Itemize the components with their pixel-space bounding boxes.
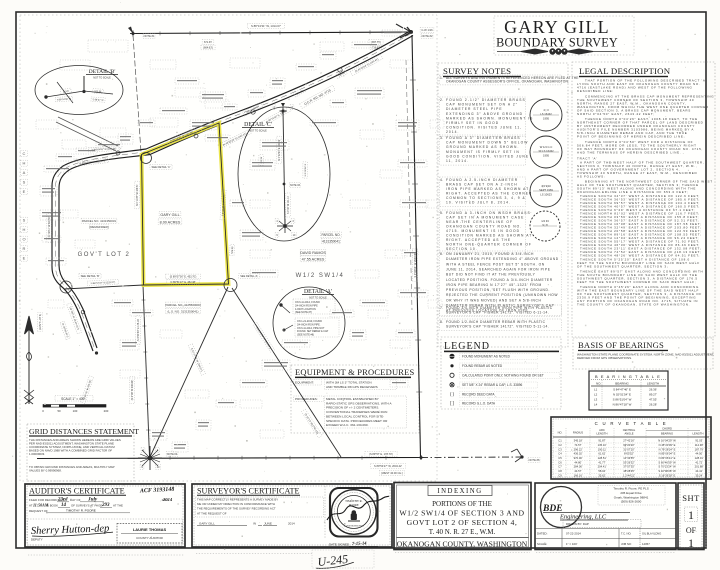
svg-text:IRON PIPE BEARING N 17'27" 45": IRON PIPE BEARING N 17'27" 45"-1323' FRO… [446, 283, 542, 287]
svg-text:4131350041: 4131350041 [322, 240, 340, 244]
svg-text:COUNTY AUDITOR: COUNTY AUDITOR [136, 536, 164, 540]
svg-text:[WEST 40.00 CH.]: [WEST 40.00 CH.] [381, 471, 403, 475]
svg-text:2014: 2014 [162, 497, 173, 502]
svg-text:METAL CONTROL ESTABLISHED BY: METAL CONTROL ESTABLISHED BY [326, 397, 379, 401]
svg-text:A: A [23, 170, 26, 175]
svg-text:201.88': 201.88' [695, 465, 704, 469]
svg-text:RADIUS: RADIUS [573, 431, 583, 435]
svg-text:WITH A STEEL FENCE POST SET 5": WITH A STEEL FENCE POST SET 5" SOUTH. ON [446, 262, 545, 266]
svg-text:REQUEST OF: REQUEST OF [29, 509, 48, 513]
svg-text:BEARING: BEARING [615, 381, 629, 385]
svg-text:(L.S. NO. 3131350041): (L.S. NO. 3131350041) [167, 310, 198, 314]
svg-text:44.80': 44.80' [574, 460, 582, 464]
svg-text:PREVIOUS POSITION, SET FLUSH W: PREVIOUS POSITION, SET FLUSH WITH GROUND… [446, 288, 550, 292]
svg-text:NO.: NO. [596, 381, 602, 385]
svg-text:(SEE NOTE #8): (SEE NOTE #8) [297, 334, 314, 337]
svg-text:NOTE #2: NOTE #2 [422, 34, 433, 38]
svg-text:JUNE: JUNE [264, 522, 272, 526]
svg-text:T.C. NO:: T.C. NO: [621, 532, 632, 536]
svg-text:190.11': 190.11' [598, 447, 607, 451]
svg-text:44.41': 44.41' [695, 469, 703, 473]
svg-text:35.62': 35.62' [598, 473, 606, 477]
svg-text:1 2°44'21": 1 2°44'21" [623, 473, 635, 477]
svg-text:(S 0°09' W 300.00'): (S 0°09' W 300.00') [131, 379, 134, 400]
svg-text:DIAMETER STEEL PIPE: DIAMETER STEEL PIPE [446, 107, 503, 111]
svg-text:N 79°28'24" E: N 79°28'24" E [659, 447, 676, 451]
svg-text:Omak, Washington 98841: Omak, Washington 98841 [614, 495, 649, 499]
svg-text:PORTIONS OF THE: PORTIONS OF THE [432, 500, 492, 508]
svg-text:NOTE #4: NOTE #4 [167, 453, 178, 456]
svg-text:S: S [23, 180, 26, 185]
svg-text:1995: 1995 [543, 153, 549, 157]
svg-text:FOUND 3/4-INCH DIAMETER IRON P: FOUND 3/4-INCH DIAMETER IRON PIPE WITH P… [446, 306, 553, 310]
svg-text:EXCEED W.A.C. 332-130-090.: EXCEED W.A.C. 332-130-090. [326, 423, 369, 427]
svg-text:CALCULATED POINT ONLY, NOTHING: CALCULATED POINT ONLY, NOTHING FOUND OR … [462, 374, 544, 378]
svg-text:CENTRAL: CENTRAL [623, 428, 636, 432]
svg-text:SHT: SHT [682, 493, 700, 503]
svg-text:NORTH ONE-QUARTER CORNER OF: NORTH ONE-QUARTER CORNER OF [446, 243, 532, 247]
svg-text:H: H [23, 161, 26, 166]
svg-text:O: O [22, 237, 25, 242]
svg-text:THIS MAP CORRECTLY REPRESENTS: THIS MAP CORRECTLY REPRESENTS A SURVEY M… [197, 498, 278, 502]
svg-text:RECORD G.L.O. DATA: RECORD G.L.O. DATA [462, 402, 496, 406]
svg-text:L1: L1 [594, 387, 598, 391]
svg-text:48°28'35": 48°28'35" [623, 469, 635, 473]
svg-text:(S 89°57' E, 178.70'): (S 89°57' E, 178.70') [369, 452, 393, 456]
svg-text:SURVEYOR'S CERTIFICATE: SURVEYOR'S CERTIFICATE [197, 487, 299, 496]
svg-text:GRID DISTANCES STATEMENT: GRID DISTANCES STATEMENT [29, 427, 139, 436]
svg-text:9 | 8: 9 | 8 [542, 223, 548, 227]
svg-text:204.41': 204.41' [598, 465, 607, 469]
svg-text:DERIVED FROM GPS OBSERVATIONS.: DERIVED FROM GPS OBSERVATIONS. [577, 356, 632, 360]
svg-text:41.77': 41.77' [598, 460, 606, 464]
svg-text:C3: C3 [558, 447, 562, 451]
svg-text:NORTH 0°04'50" EAST, 2643.42 F: NORTH 0°04'50" EAST, 2643.42 FEET; [577, 112, 655, 116]
svg-text:DATED:: DATED: [537, 532, 548, 536]
svg-text:114.38': 114.38' [695, 443, 704, 447]
svg-text:FOUND REBAR AS NOTED: FOUND REBAR AS NOTED [462, 364, 503, 368]
svg-text:EXTENDING 3" ABOVE GROUND: EXTENDING 3" ABOVE GROUND [446, 112, 523, 116]
svg-text:N 86°47'18" W: N 86°47'18" W [613, 402, 632, 406]
svg-text:( ): ( ) [450, 392, 455, 397]
svg-text:AS FOLLOWS:: AS FOLLOWS: [577, 174, 605, 178]
svg-text:PARCEL NO. 4131350031: PARCEL NO. 4131350031 [82, 219, 116, 223]
svg-text:1: 1 [688, 536, 694, 550]
svg-text:1" = 100': 1" = 100' [566, 542, 578, 546]
svg-text:E: E [23, 256, 26, 261]
svg-text:W1/2 SW1/4 OF SECTION 3 AND: W1/2 SW1/4 OF SECTION 3 AND [399, 509, 524, 518]
svg-text:LEGAL DESCRIPTION: LEGAL DESCRIPTION [579, 66, 671, 76]
svg-text:SURVEYOR'S CAP "FISHER 14172".: SURVEYOR'S CAP "FISHER 14172". VISITED 5… [446, 324, 549, 328]
svg-text:S 84°47'46" E: S 84°47'46" E [613, 387, 631, 391]
svg-text:SEE DETAIL 'C': SEE DETAIL 'C' [152, 165, 171, 169]
svg-text:C8: C8 [558, 469, 562, 473]
svg-text:14057: 14057 [642, 542, 650, 546]
svg-text:2014.: 2014. [446, 130, 460, 134]
svg-text:FOUND A 2.5-INCH DIAMETER: FOUND A 2.5-INCH DIAMETER [446, 178, 518, 182]
svg-text:166.16': 166.16' [574, 473, 583, 477]
svg-text:GOOD CONDITION. VISITED JUNE: GOOD CONDITION. VISITED JUNE [446, 154, 529, 158]
svg-text:S 70°23'24" W: S 70°23'24" W [658, 465, 676, 469]
svg-text:OKANOGAN COUNTY, WASHINGTON: OKANOGAN COUNTY, WASHINGTON [397, 540, 528, 549]
svg-text:IN BOOK: IN BOOK [46, 504, 58, 508]
svg-text:284.00': 284.00' [574, 465, 583, 469]
svg-text:LENGTH: LENGTH [693, 432, 704, 436]
svg-text:31°07'20": 31°07'20" [623, 447, 635, 451]
svg-text:44.57': 44.57' [574, 469, 582, 473]
svg-text:GOV'T LOT 2: GOV'T LOT 2 [78, 252, 131, 258]
svg-text:1.00009033.: 1.00009033. [29, 452, 45, 456]
svg-text:CAP SET IN A MONUMENT CASE: CAP SET IN A MONUMENT CASE [446, 216, 524, 220]
svg-text:C6: C6 [558, 460, 562, 464]
svg-text:91.87': 91.87' [598, 439, 606, 443]
svg-text:8°05'52": 8°05'52" [624, 452, 634, 456]
svg-text:Timothy R. Poore, PE PLS: Timothy R. Poore, PE PLS [613, 487, 648, 491]
svg-text:GROUND MARKED AS SHOWN.: GROUND MARKED AS SHOWN. [446, 145, 519, 149]
svg-text:128.01': 128.01' [695, 456, 704, 460]
svg-text:205 Equal Drive: 205 Equal Drive [620, 491, 642, 495]
svg-text:PRECISION OF +/- 2 CENTIMETERS: PRECISION OF +/- 2 CENTIMETERS. [326, 406, 379, 410]
svg-text:C9: C9 [558, 473, 562, 477]
svg-text:47.55 ACRES: 47.55 ACRES [302, 258, 325, 262]
svg-text:AT THE REQUEST OF: AT THE REQUEST OF [197, 511, 227, 515]
svg-text:07-22-2014: 07-22-2014 [566, 532, 581, 536]
svg-text:RECORD DEED DATA: RECORD DEED DATA [462, 393, 495, 397]
svg-text:NOTE #1: NOTE #1 [144, 34, 155, 38]
svg-text:BRASS CAP SET ON A 2-INCH: BRASS CAP SET ON A 2-INCH [446, 183, 518, 187]
svg-text:OKANOGAN COUNTY ASSESSOR'S OFF: OKANOGAN COUNTY ASSESSOR'S OFFICE, OKANO… [446, 80, 569, 84]
svg-text:GARY GILL: GARY GILL [504, 17, 610, 37]
svg-text:436.02': 436.02' [574, 452, 583, 456]
svg-text:187.79': 187.79' [695, 447, 704, 451]
svg-text:REJECTED THE CURRENT POSITION: REJECTED THE CURRENT POSITION (UNKNOWN H… [446, 293, 558, 297]
svg-text:NOT TO SCALE: NOT TO SCALE [249, 130, 267, 133]
svg-text:37°57'35": 37°57'35" [623, 465, 635, 469]
svg-text:[ ]: [ ] [450, 401, 454, 406]
svg-text:FOUND 1/2-INCH DIAMETER REBAR: FOUND 1/2-INCH DIAMETER REBAR WITH PLAST… [446, 320, 546, 324]
svg-text:IRON PIPE MARKED AS SHOWN AT: IRON PIPE MARKED AS SHOWN AT [446, 187, 529, 191]
svg-text:OF SURVEYS AT PAGE: OF SURVEYS AT PAGE [71, 504, 102, 508]
svg-text:L4: L4 [594, 402, 598, 406]
svg-text:LS 10623: LS 10623 [540, 192, 552, 196]
svg-text:FOUND A 3-INCH ON WSDH BRASS: FOUND A 3-INCH ON WSDH BRASS [446, 211, 531, 215]
svg-text:NOTE #3: NOTE #3 [290, 184, 301, 187]
svg-text:OF: OF [686, 526, 697, 535]
svg-text:1.: 1. [440, 76, 443, 80]
svg-text:GIL BLA VLDNG: GIL BLA VLDNG [642, 532, 661, 536]
svg-text:CAP MONUMENT SET ON A 2": CAP MONUMENT SET ON A 2" [446, 103, 518, 107]
svg-text:THE REQUIREMENTS OF THE SURVEY: THE REQUIREMENTS OF THE SURVEY RECORDING… [197, 507, 276, 511]
svg-text:S 16°39'28" E: S 16°39'28" E [659, 473, 676, 477]
svg-text:BOUNDARY SURVEY: BOUNDARY SURVEY [496, 36, 618, 50]
svg-text:(509) 826-2600: (509) 826-2600 [621, 500, 642, 504]
svg-text:OR WHY IT WAS MOVED) AND SET A: OR WHY IT WAS MOVED) AND SET A 5/8-INCH [446, 298, 541, 302]
svg-text:CAP MONUMENT DOWN 5" BELOW: CAP MONUMENT DOWN 5" BELOW [446, 141, 528, 145]
svg-text:SURVEYOR'S CAP "FISHER 14172".: SURVEYOR'S CAP "FISHER 14172". VISITED 6… [446, 310, 549, 314]
svg-text:S 86°51'04" W: S 86°51'04" W [613, 397, 632, 401]
svg-text:DESCRIBED LINE:: DESCRIBED LINE: [577, 89, 614, 93]
svg-text:23rd: 23rd [57, 498, 68, 503]
svg-text:OKANOGAN COUNTY ROAD NO.: OKANOGAN COUNTY ROAD NO. [446, 225, 522, 229]
svg-text:(S 89°57'00" E, 453.70'): (S 89°57'00" E, 453.70') [170, 276, 197, 279]
svg-text:296.22': 296.22' [574, 447, 583, 451]
svg-text:NOTE #6: NOTE #6 [529, 458, 540, 462]
svg-text:DIAMETER IRON PIPE EXTENDING 4: DIAMETER IRON PIPE EXTENDING 4" ABOVE GR… [446, 257, 559, 261]
svg-text:DAVID RAMOS: DAVID RAMOS [300, 251, 326, 255]
svg-text:14: 14 [61, 503, 67, 508]
svg-text:THE COUNTY OF OKANOGAN, STATE: THE COUNTY OF OKANOGAN, STATE OF WASHING… [577, 303, 690, 307]
svg-text:3.: 3. [440, 136, 443, 140]
svg-text:4 | 3: 4 | 3 [543, 108, 549, 112]
svg-text:(664.63'): (664.63') [203, 47, 213, 50]
svg-text:DEPUTY: DEPUTY [31, 538, 43, 542]
svg-text:53°26'32": 53°26'32" [623, 460, 635, 464]
svg-text:C7: C7 [558, 465, 562, 469]
svg-text:W1/2 SW1/4: W1/2 SW1/4 [296, 273, 345, 279]
svg-text:FOUND MONUMENT AS NOTED: FOUND MONUMENT AS NOTED [462, 355, 511, 359]
svg-text:SEE DETAIL 'B': SEE DETAIL 'B' [81, 274, 100, 278]
svg-text:AT THE: AT THE [113, 504, 123, 508]
svg-text:T. 40 N. R. 27 E., W.M.: T. 40 N. R. 27 E., W.M. [429, 528, 496, 536]
svg-text:8.00 ACRES: 8.00 ACRES [160, 221, 181, 225]
svg-text:135.10': 135.10' [598, 443, 607, 447]
svg-text:TIMOTHY R. POORE: TIMOTHY R. POORE [66, 509, 96, 513]
svg-text:N 0°06'04" E: N 0°06'04" E [305, 163, 307, 176]
svg-text:LAURIE THOMAS: LAURIE THOMAS [133, 527, 167, 532]
svg-text:91.03': 91.03' [695, 439, 703, 443]
svg-text:IN: IN [253, 522, 256, 526]
svg-text:ON JANUARY 21, 2010, FOUND A 3: ON JANUARY 21, 2010, FOUND A 3/4-INCH [446, 252, 534, 256]
svg-text:N 45°23'09" E: N 45°23'09" E [659, 443, 676, 447]
svg-text:BEARING: BEARING [661, 432, 673, 436]
svg-text:H: H [23, 227, 26, 232]
svg-text:LENGTH: LENGTH [597, 432, 608, 436]
svg-text:C1: C1 [558, 439, 562, 443]
svg-text:FOUND 2-1/2" DIAMETER BRASS: FOUND 2-1/2" DIAMETER BRASS [446, 98, 526, 102]
svg-text:B E A R I N G T A B L E: B E A R I N G T A B L E [595, 374, 661, 379]
svg-text:33 LS 16432: 33 LS 16432 [538, 149, 554, 153]
svg-text:1: 1 [688, 508, 694, 522]
svg-text:AUDITOR'S CERTIFICATE: AUDITOR'S CERTIFICATE [29, 487, 125, 496]
svg-text:RIGHT. ACCEPTED AS THE CORNER: RIGHT. ACCEPTED AS THE CORNER [446, 192, 532, 196]
svg-text:7-15-14: 7-15-14 [352, 540, 367, 546]
svg-text:61.62': 61.62' [598, 452, 606, 456]
svg-text:LAND SURVEYOR: LAND SURVEYOR [344, 525, 364, 528]
svg-text:PROCEDURES:: PROCEDURES: [295, 397, 318, 401]
svg-text:2014: 2014 [288, 522, 295, 526]
svg-text:200: 200 [104, 409, 109, 413]
svg-text:W 1/4 C-C: W 1/4 C-C [540, 145, 553, 149]
svg-text:NOT TO SCALE: NOT TO SCALE [93, 77, 111, 80]
svg-text:11, 2014.: 11, 2014. [446, 159, 469, 163]
svg-text:293: 293 [101, 503, 110, 508]
svg-text:LENGTH: LENGTH [647, 381, 659, 385]
svg-text:74.57': 74.57' [574, 443, 582, 447]
svg-text:POINT OF BEGINNING OF HEREIN D: POINT OF BEGINNING OF HEREIN DESCRIBED L… [577, 135, 685, 139]
svg-text:CONDITION MARKED AS SHOWN AT: CONDITION MARKED AS SHOWN AT [446, 234, 532, 238]
svg-text:C2: C2 [558, 443, 562, 447]
svg-text:CHORD: CHORD [662, 427, 672, 431]
svg-text:L3: L3 [594, 397, 598, 401]
svg-text:AND TRIMBLE R8 GPS RECEIVERS: AND TRIMBLE R8 GPS RECEIVERS [326, 385, 378, 389]
svg-text:LEGEND: LEGEND [444, 341, 490, 352]
svg-text:FOUND A 3" DIAMETER BRASS: FOUND A 3" DIAMETER BRASS [446, 136, 521, 140]
svg-text:S 60°46'59" W: S 60°46'59" W [658, 460, 676, 464]
svg-text:2.: 2. [440, 98, 443, 102]
svg-text:44.50': 44.50' [695, 452, 703, 456]
svg-text:14°33'55": 14°33'55" [623, 456, 635, 460]
svg-text:MARKED AS SHOWN. MONUMENT IS: MARKED AS SHOWN. MONUMENT IS [446, 116, 533, 120]
svg-text:8.: 8. [440, 320, 443, 324]
svg-text:4715. MONUMENT IS IN GOOD: 4715. MONUMENT IS IN GOOD [446, 229, 520, 233]
svg-text:L2: L2 [594, 392, 598, 396]
svg-text:5.: 5. [440, 211, 443, 215]
svg-text:4|3 9|10: 4|3 9|10 [541, 184, 551, 188]
svg-text:RIGHT. ACCEPTED AS THE: RIGHT. ACCEPTED AS THE [446, 238, 511, 242]
svg-text:50: 50 [57, 409, 61, 413]
svg-text:EQUIPMENT & PROCEDURES: EQUIPMENT & PROCEDURES [295, 367, 415, 377]
svg-text:S 40°08'28" W: S 40°08'28" W [658, 469, 676, 473]
svg-text:C5: C5 [558, 456, 562, 460]
svg-text:SET 5/8" X 24" REBAR & CAP, L.: SET 5/8" X 24" REBAR & CAP, L.S. 33896 [462, 383, 522, 387]
svg-text:GARY GILL: GARY GILL [160, 213, 179, 217]
svg-text:EQUIPMENT:: EQUIPMENT: [295, 381, 314, 385]
svg-text:C-W 1/16: C-W 1/16 [421, 28, 433, 32]
svg-text:ANGLE: ANGLE [624, 432, 633, 436]
svg-text:COMMON TO SECTIONS 3, 4, 9 &: COMMON TO SECTIONS 3, 4, 9 & [446, 196, 526, 200]
svg-text:BASIS OF BEARINGS: BASIS OF BEARINGS [578, 340, 664, 350]
svg-text:26.28': 26.28' [649, 402, 657, 406]
svg-text:58.04': 58.04' [598, 469, 606, 473]
svg-text:N 89°51'47" E, 452.38': N 89°51'47" E, 452.38' [170, 281, 196, 284]
svg-text:FIRMLY SET IN GOOD: FIRMLY SET IN GOOD [446, 121, 499, 125]
svg-text:NO.: NO. [558, 431, 563, 435]
svg-text:S 89°54'27" W, 2643.42': S 89°54'27" W, 2643.42' [374, 464, 402, 468]
svg-text:(REMAINDER): (REMAINDER) [89, 225, 108, 229]
svg-text:N 02°51'54" E: N 02°51'54" E [613, 392, 631, 396]
svg-text:DAY OF: DAY OF [70, 498, 81, 502]
svg-text:41.72': 41.72' [695, 460, 703, 464]
svg-text:(SEE NOTE #7): (SEE NOTE #7) [295, 311, 312, 314]
svg-text:26.36': 26.36' [649, 387, 657, 391]
svg-text:NEAR THE CENTERLINE OF: NEAR THE CENTERLINE OF [446, 220, 513, 224]
svg-text:GARY GILL: GARY GILL [199, 522, 215, 526]
svg-text:S 0°06' W 101.11': S 0°06' W 101.11' [288, 195, 290, 214]
svg-text:INDEXING: INDEXING [437, 488, 482, 495]
svg-text:89.27': 89.27' [649, 392, 657, 396]
svg-text:ME OR UNDER MY DIRECTION IN CO: ME OR UNDER MY DIRECTION IN CONFORMANCE … [197, 502, 275, 506]
svg-text:E: E [23, 189, 26, 194]
svg-text:(657.75'): (657.75') [371, 41, 381, 44]
svg-text:970.00': 970.00' [574, 456, 583, 460]
svg-text:LOCATED POSITION. FOUND A 3/4: LOCATED POSITION. FOUND A 3/4-INCH DIAME… [446, 278, 553, 282]
svg-text:128.51': 128.51' [598, 456, 607, 460]
svg-text:BETWEEN LOCAL CONTROL FOR SITE: BETWEEN LOCAL CONTROL FOR SITE- [326, 414, 384, 418]
svg-text:C4: C4 [558, 452, 562, 456]
svg-text:DRAWN BY: DAP: DRAWN BY: DAP [566, 522, 589, 526]
svg-text:10. VISITED JULY 8, 2014.: 10. VISITED JULY 8, 2014. [446, 201, 511, 205]
svg-text:OF THE SOUTHWEST QUARTER, SECT: OF THE SOUTHWEST QUARTER, SECTION 3; [577, 264, 668, 268]
svg-text:100: 100 [73, 409, 78, 413]
svg-text:35.24': 35.24' [695, 473, 703, 477]
svg-text:345.18': 345.18' [574, 439, 583, 443]
svg-text:N 84°06'41" E: N 84°06'41" E [659, 456, 676, 460]
svg-text:DATE SIGNED: DATE SIGNED [329, 543, 350, 547]
svg-text:N 0°11'25" W 164.51': N 0°11'25" W 164.51' [137, 184, 139, 206]
svg-text:JUNE 11, 2014, SEARCHED AGAIN: JUNE 11, 2014, SEARCHED AGAIN FOR IRON P… [446, 267, 551, 271]
svg-text:S 88°13'31" W, 1314.67': S 88°13'31" W, 1314.67' [251, 24, 282, 28]
svg-text:S: S [23, 218, 26, 223]
svg-text:SEE DETAIL 'A': SEE DETAIL 'A' [240, 275, 258, 278]
svg-text:27°42'16": 27°42'16" [623, 439, 635, 443]
svg-text:R: R [23, 246, 26, 251]
svg-text:1/4 33: 1/4 33 [541, 219, 549, 223]
svg-text:C U R V E T A B L E: C U R V E T A B L E [595, 421, 668, 426]
svg-text:MONUMENT IS FIRMLY SET IN: MONUMENT IS FIRMLY SET IN [446, 150, 520, 154]
svg-text:SURVEY NOTES: SURVEY NOTES [443, 66, 511, 76]
svg-text:SEPT 1969: SEPT 1969 [539, 188, 553, 192]
svg-text:1995: 1995 [543, 116, 549, 120]
svg-text:N 85°06'04" E: N 85°06'04" E [659, 452, 676, 456]
svg-text:N 16°04'29" W: N 16°04'29" W [658, 439, 676, 443]
svg-text:GOVT LOT 2 OF SECTION 4,: GOVT LOT 2 OF SECTION 4, [407, 518, 518, 527]
svg-text:(GOV'T LOT 3): (GOV'T LOT 3) [39, 314, 42, 330]
svg-text:47.55': 47.55' [649, 397, 657, 401]
svg-text:6.: 6. [440, 252, 443, 256]
svg-text:JOB NO:: JOB NO: [621, 542, 632, 546]
svg-text:LS 16432: LS 16432 [540, 112, 552, 116]
svg-text:AND THE TERMINUS OF HEREIN DES: AND THE TERMINUS OF HEREIN DESCRIBED LIN… [577, 150, 681, 154]
svg-text:CONDITION. VISITED JUNE 11,: CONDITION. VISITED JUNE 11, [446, 126, 522, 130]
svg-text:N 0°04'50" E 175.16': N 0°04'50" E 175.16' [137, 318, 140, 341]
svg-text:4.: 4. [440, 178, 443, 182]
svg-text:C: C [23, 151, 26, 156]
svg-text:FEET TO THE SOUTHWEST CORNER O: FEET TO THE SOUTHWEST CORNER OF SAID WES… [577, 280, 696, 284]
svg-text:July: July [87, 497, 98, 503]
svg-text:SECTION 10.: SECTION 10. [446, 247, 478, 251]
svg-text:SCALE:: SCALE: [537, 542, 547, 546]
svg-text:ARC: ARC [599, 428, 605, 432]
svg-text:BUT DID NOT FIND IT AT THE PRE: BUT DID NOT FIND IT AT THE PREVIOUSLY [446, 273, 536, 277]
svg-text:VALUES BY 0.99990968.: VALUES BY 0.99990968. [29, 469, 62, 473]
svg-text:528.30': 528.30' [232, 246, 234, 254]
svg-text:PARCEL NO.: PARCEL NO. [322, 233, 341, 237]
